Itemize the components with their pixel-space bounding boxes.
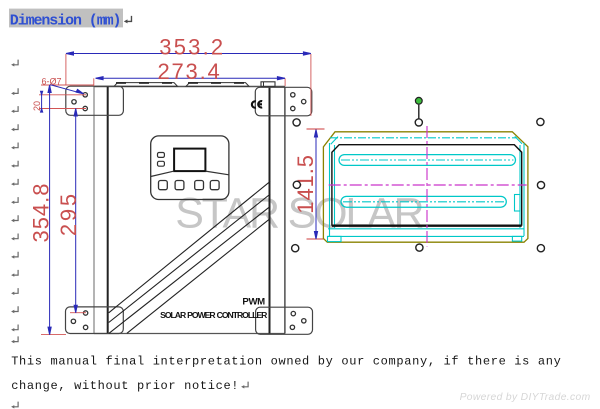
svg-text:20: 20 (32, 101, 42, 111)
svg-text:273.4: 273.4 (157, 59, 221, 84)
svg-text:295: 295 (56, 191, 81, 236)
svg-text:Dimension (mm): Dimension (mm) (10, 13, 121, 30)
svg-text:SOLAR POWER CONTROLLER: SOLAR POWER CONTROLLER (160, 310, 268, 320)
svg-text:Powered by DIYTrade.com: Powered by DIYTrade.com (460, 392, 591, 403)
svg-text:353.2: 353.2 (159, 34, 225, 59)
svg-text:PWM: PWM (242, 297, 265, 308)
svg-text:6-Ø7: 6-Ø7 (42, 76, 62, 86)
svg-text:This manual final interpretati: This manual final interpretation owned b… (11, 354, 561, 368)
svg-text:change, without prior notice!: change, without prior notice! (11, 379, 239, 393)
svg-text:354.8: 354.8 (29, 182, 54, 242)
